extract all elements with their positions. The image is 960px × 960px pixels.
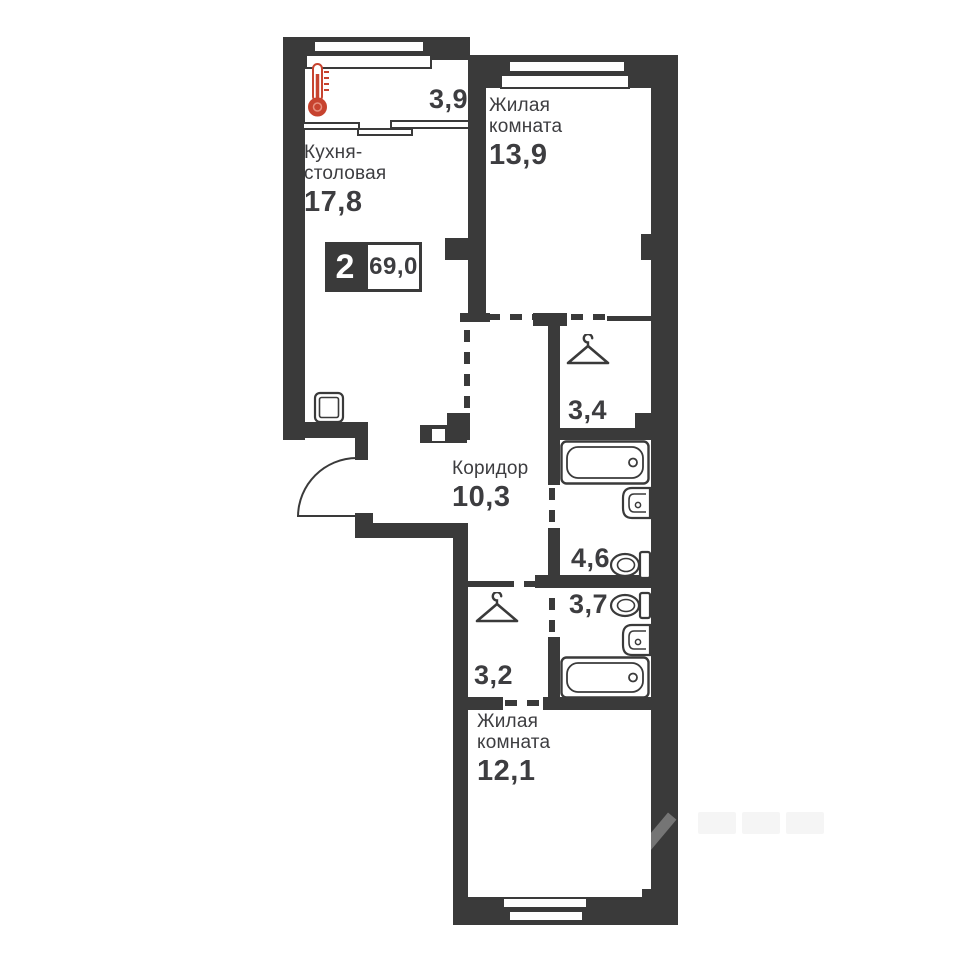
bathroom1-area-label: 4,6 [571,543,610,574]
door-living2 [505,700,541,706]
wall-living1-bottom-thin [607,316,651,321]
toilet-icon [609,549,651,581]
apartment-badge: 2 69,0 [325,242,422,292]
opening-kitchen-corridor [464,330,470,414]
wall-living2-top-left [453,697,503,710]
wall-pilaster-wardrobe1 [635,413,651,428]
wall-right-outer [651,55,678,925]
rooms-count: 2 [325,242,365,292]
wall-wardrobe2-top [468,581,504,587]
wall-corridor-bath1-b [548,528,560,575]
total-area: 69,0 [365,242,422,292]
kitchen-sink-icon [313,391,345,429]
kitchen-balcony-glazing-left [302,122,360,130]
balcony-area-label: 3,9 [398,84,468,115]
living1-window-outer [508,60,626,73]
wall-pilaster-kitchen [445,238,468,260]
floor-plan: 3,9 Кухня- столовая 17,8 Жилая комната 1… [0,0,960,960]
opening-living1-right [571,314,607,320]
wall-entry-jamb [355,422,368,460]
hanger-icon [474,592,520,628]
watermark-text [698,812,824,834]
bathtub-icon [560,656,650,699]
living1-label: Жилая комната 13,9 [489,95,562,172]
wall-endcap [460,313,490,322]
balcony-window-outer [313,40,425,53]
opening-living1-left [488,314,534,320]
wall-living2-se-step [642,889,651,897]
door-bathroom2 [549,598,555,638]
thermometer-icon [303,62,331,118]
wall-wardrobe1-bottom [548,428,651,440]
wall-corridor-bath1-a [548,430,560,485]
entrance-door-leaf [297,515,357,517]
bathtub-icon [560,440,650,485]
living2-label: Жилая комната 12,1 [477,711,550,788]
sink-icon [621,486,651,520]
wall-kitchen-living1 [468,55,486,318]
entrance-door-arc [297,457,357,517]
living1-window-inner [500,74,630,89]
toilet-icon [609,590,651,621]
hanger-icon [565,334,611,370]
living2-window-inner [508,910,584,922]
door-wardrobe2 [502,581,538,587]
wall-pilaster-right [641,234,651,260]
wall-left-kitchen [283,37,305,440]
wardrobe2-area-label: 3,2 [474,660,513,691]
kitchen-balcony-glazing-right [390,120,470,129]
bathroom2-area-label: 3,7 [569,589,608,620]
door-bathroom1 [549,488,555,528]
wall-left-lower [453,523,468,925]
kitchen-label: Кухня- столовая 17,8 [304,142,386,219]
wall-corridor-wardrobe1 [548,313,560,430]
sink-icon [621,623,651,657]
corridor-label: Коридор 10,3 [452,458,528,514]
living2-window-outer [502,897,588,909]
kitchen-balcony-glazing-mid [357,128,413,136]
vent-niche [432,429,445,441]
wall-corridor-bath2 [548,637,560,697]
wall-corridor-south [355,523,468,538]
wardrobe1-area-label: 3,4 [568,395,607,426]
